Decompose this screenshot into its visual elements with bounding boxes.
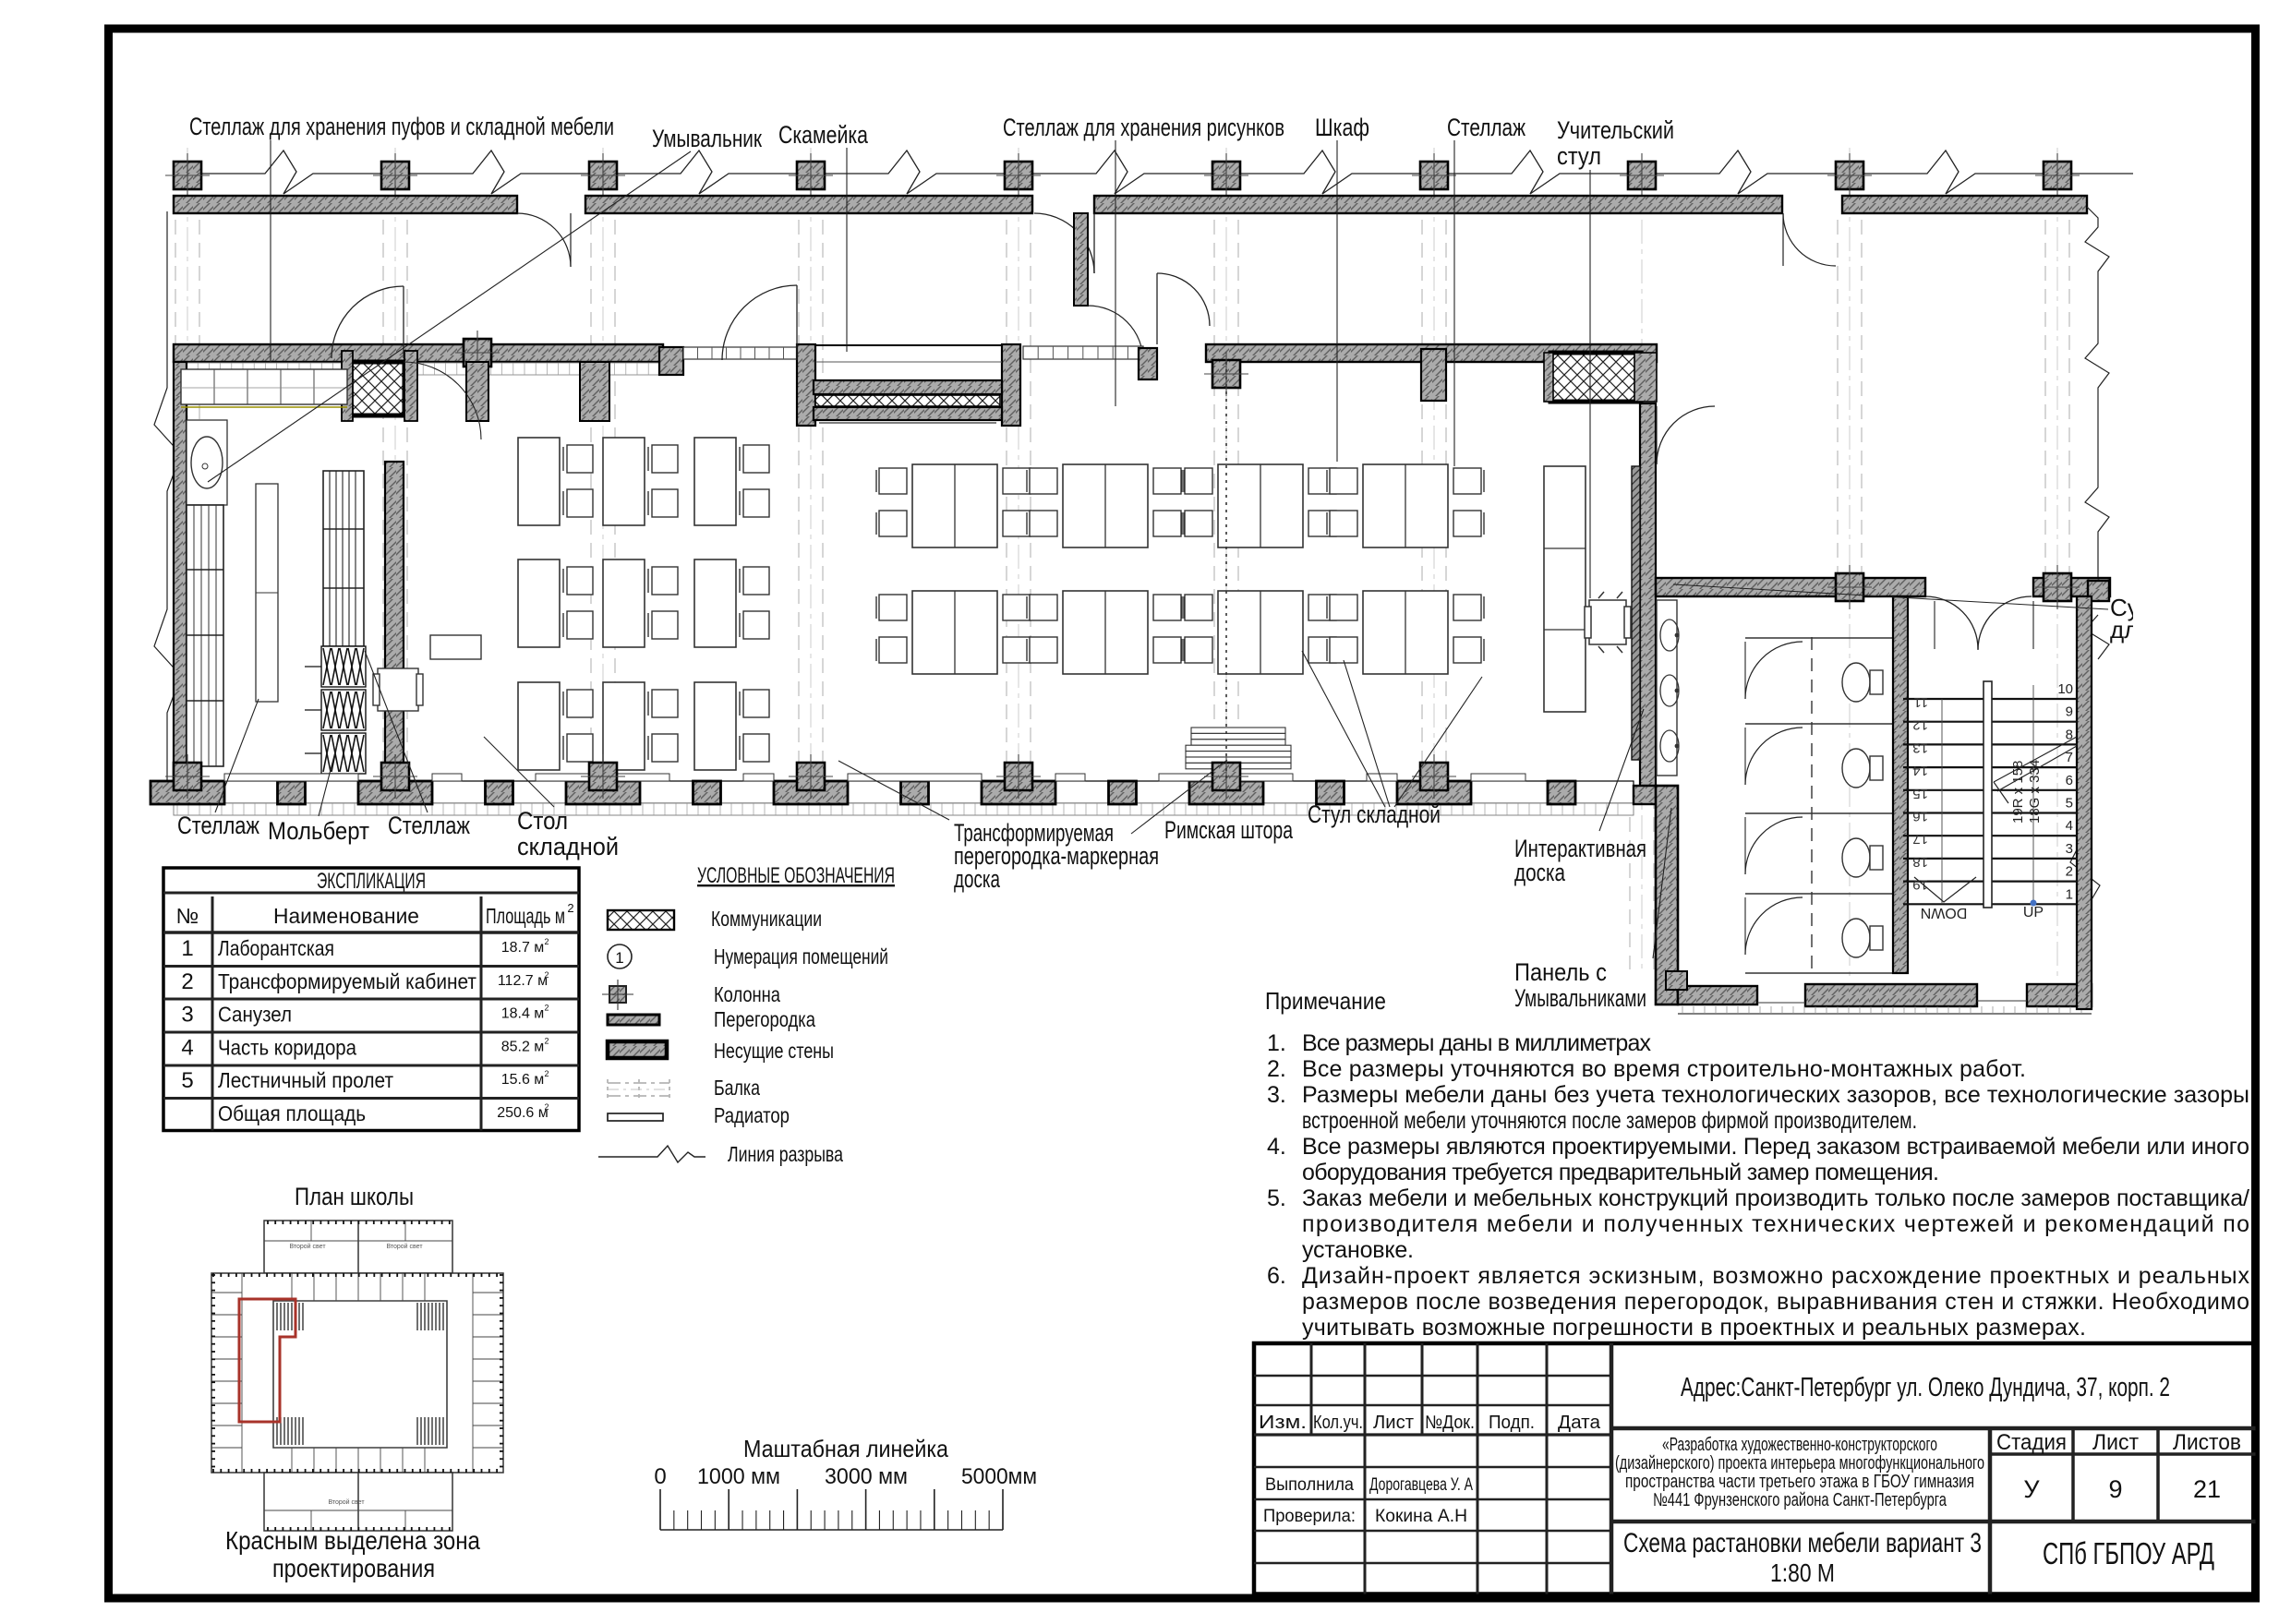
svg-text:18: 18 [1912,854,1928,870]
svg-text:14: 14 [1912,763,1928,778]
svg-text:3: 3 [181,1003,193,1028]
svg-text:1:80 М: 1:80 М [1770,1558,1835,1587]
svg-text:5000мм: 5000мм [961,1464,1037,1489]
svg-text:4.: 4. [1267,1134,1286,1160]
svg-text:15: 15 [1912,786,1928,801]
svg-text:Общая площадь: Общая площадь [218,1101,366,1125]
svg-text:Дизайн-проект является эскизны: Дизайн-проект является эскизным, возможн… [1302,1263,2250,1289]
svg-text:Все размеры уточняются во врем: Все размеры уточняются во время строител… [1302,1056,2026,1082]
svg-text:Санузел: Санузел [218,1003,292,1027]
svg-text:11: 11 [1913,694,1928,710]
svg-text:19R x 158: 19R x 158 [2010,761,2026,824]
svg-text:Примечание: Примечание [1265,987,1386,1015]
svg-text:ЭКСПЛИКАЦИЯ: ЭКСПЛИКАЦИЯ [317,869,426,894]
svg-text:складной: складной [517,833,619,860]
svg-text:DOWN: DOWN [1921,905,1968,920]
svg-text:4: 4 [2066,818,2073,834]
svg-text:Стеллаж для хранения пуфов и с: Стеллаж для хранения пуфов и складной ме… [189,113,614,140]
svg-text:6.: 6. [1267,1263,1286,1289]
svg-text:Все размеры являются проектиру: Все размеры являются проектируемыми. Пер… [1302,1134,2249,1160]
svg-text:Размеры мебели даны без учета: Размеры мебели даны без учета технологич… [1302,1082,2249,1108]
svg-text:9: 9 [2108,1475,2122,1503]
svg-text:17: 17 [1912,831,1928,847]
svg-text:2: 2 [544,1102,549,1112]
svg-text:Площадь м: Площадь м [486,904,565,928]
svg-text:Схема растановки мебели вариан: Схема растановки мебели вариант 3 [1623,1528,1982,1558]
svg-text:Лист: Лист [2092,1430,2139,1455]
svg-text:Скамейка: Скамейка [778,121,869,149]
svg-text:Стеллаж для хранения рисунков: Стеллаж для хранения рисунков [1003,114,1284,141]
svg-text:UP: UP [2023,905,2044,920]
svg-text:Дорогавцева У. А: Дорогавцева У. А [1369,1475,1473,1495]
svg-text:5: 5 [181,1068,193,1093]
svg-text:5: 5 [2066,796,2073,812]
svg-text:Второй свет: Второй свет [386,1243,423,1250]
svg-text:У: У [2023,1475,2040,1503]
svg-text:Стол: Стол [517,807,568,835]
svg-text:Выполнила: Выполнила [1265,1475,1354,1495]
svg-text:Перегородка: Перегородка [714,1007,815,1031]
svg-text:1: 1 [181,936,193,961]
svg-text:Стеллаж: Стеллаж [177,812,259,839]
svg-text:Нумерация помещений: Нумерация помещений [714,944,888,968]
svg-text:Коммуникации: Коммуникации [711,907,822,931]
svg-text:2: 2 [544,937,549,946]
svg-text:18.4 м: 18.4 м [501,1006,545,1022]
svg-text:112.7 м: 112.7 м [498,973,548,989]
svg-text:2: 2 [544,1004,549,1013]
svg-text:№Док.: №Док. [1425,1413,1475,1433]
svg-text:Наименование: Наименование [273,904,419,928]
svg-text:Радиатор: Радиатор [714,1103,790,1127]
svg-text:Красным выделена зона: Красным выделена зона [225,1526,480,1555]
svg-text:СПб ГБПОУ АРД: СПб ГБПОУ АРД [2043,1536,2214,1570]
svg-text:1: 1 [615,949,623,967]
svg-text:Стул складной: Стул складной [1308,800,1441,828]
svg-text:проектирования: проектирования [272,1554,435,1582]
svg-text:1000 мм: 1000 мм [697,1464,780,1489]
svg-text:21: 21 [2193,1475,2221,1503]
svg-text:Подп.: Подп. [1489,1413,1535,1433]
svg-text:4: 4 [181,1035,193,1060]
svg-text:3.: 3. [1267,1082,1286,1108]
svg-text:Римская штора: Римская штора [1164,816,1294,844]
svg-text:пространства части третьего эт: пространства части третьего этажа в ГБОУ… [1625,1472,1974,1492]
svg-text:250.6 м: 250.6 м [497,1105,548,1121]
svg-text:15.6 м: 15.6 м [501,1072,545,1088]
svg-text:Маштабная линейка: Маштабная линейка [743,1435,948,1462]
svg-text:Умывальник: Умывальник [652,125,762,152]
svg-text:Учительский: Учительский [1557,116,1674,144]
svg-text:Второй свет: Второй свет [289,1243,326,1250]
svg-text:2: 2 [544,1036,549,1045]
svg-text:9: 9 [2066,704,2073,720]
svg-text:85.2 м: 85.2 м [501,1039,545,1054]
svg-text:УСЛОВНЫЕ ОБОЗНАЧЕНИЯ: УСЛОВНЫЕ ОБОЗНАЧЕНИЯ [697,863,895,888]
svg-text:№: № [176,904,199,928]
svg-text:размеров после возведения пере: размеров после возведения перегородок, в… [1302,1289,2249,1315]
svg-text:2: 2 [544,970,549,980]
svg-text:Несущие стены: Несущие стены [714,1039,834,1063]
svg-text:3000 мм: 3000 мм [825,1464,908,1489]
svg-text:План школы: План школы [295,1183,414,1210]
svg-text:Заказ мебели и мебельных конст: Заказ мебели и мебельных конструкций про… [1302,1185,2249,1211]
svg-text:Лестничный пролет: Лестничный пролет [218,1068,393,1092]
svg-text:13: 13 [1912,740,1928,755]
svg-text:Стеллаж: Стеллаж [388,812,470,839]
svg-text:Колонна: Колонна [714,982,780,1006]
svg-text:№441 Фрунзенского района Санкт: №441 Фрунзенского района Санкт-Петербург… [1653,1490,1947,1510]
svg-text:2: 2 [2066,864,2073,880]
svg-text:Шкаф: Шкаф [1315,114,1369,141]
svg-text:2: 2 [544,1069,549,1078]
svg-text:Панель с: Панель с [1514,958,1607,986]
svg-text:Лист: Лист [1373,1413,1414,1433]
svg-text:Стеллаж: Стеллаж [1447,114,1525,141]
svg-text:установке.: установке. [1302,1237,1414,1263]
svg-text:Кол.уч.: Кол.уч. [1313,1413,1363,1433]
svg-text:Изм.: Изм. [1259,1413,1307,1433]
svg-text:19: 19 [1912,877,1928,893]
svg-text:Стадия: Стадия [1996,1430,2067,1455]
svg-text:2: 2 [181,969,193,994]
svg-text:учитывать возможные погрешност: учитывать возможные погрешности в проект… [1302,1315,2086,1341]
svg-text:2: 2 [567,901,573,915]
svg-text:Второй свет: Второй свет [328,1498,365,1506]
svg-text:Умывальниками: Умывальниками [1514,984,1646,1012]
svg-text:оборудования требуется предвар: оборудования требуется предварительный з… [1302,1160,1939,1185]
svg-text:18G x 334: 18G x 334 [2027,760,2043,824]
svg-text:18.7 м: 18.7 м [501,940,545,956]
svg-text:Часть коридора: Часть коридора [218,1035,356,1059]
svg-text:Дата: Дата [1558,1413,1601,1433]
svg-text:0: 0 [654,1464,666,1489]
svg-text:встроенной мебели уточняются п: встроенной мебели уточняются после замер… [1302,1108,1917,1134]
svg-text:доска: доска [954,865,1001,893]
svg-text:Все размеры даны в миллиметрах: Все размеры даны в миллиметрах [1302,1030,1652,1056]
svg-text:1: 1 [2066,886,2073,902]
svg-text:5.: 5. [1267,1185,1286,1211]
svg-text:Лаборантская: Лаборантская [218,936,334,960]
svg-text:Адрес:Санкт-Петербург ул. Олек: Адрес:Санкт-Петербург ул. Олеко Дундича,… [1681,1373,2170,1402]
svg-text:«Разработка художественно-конс: «Разработка художественно-конструкторско… [1662,1435,1937,1455]
svg-text:Кокина А.Н: Кокина А.Н [1375,1507,1467,1526]
svg-text:Трансформируемый кабинет: Трансформируемый кабинет [218,969,476,993]
svg-text:10: 10 [2057,681,2073,697]
svg-text:доска: доска [1514,859,1566,886]
svg-text:(дизайнерского) проекта интерь: (дизайнерского) проекта интерьера многоф… [1615,1453,1984,1474]
svg-text:2.: 2. [1267,1056,1286,1082]
svg-text:3: 3 [2066,841,2073,857]
svg-text:1.: 1. [1267,1030,1286,1056]
svg-text:Листов: Листов [2173,1430,2241,1455]
svg-text:16: 16 [1912,809,1928,824]
svg-text:6: 6 [2066,773,2073,788]
svg-text:Проверила:: Проверила: [1263,1507,1356,1526]
svg-text:Балка: Балка [714,1076,760,1100]
svg-text:12: 12 [1912,717,1928,733]
svg-text:Линия разрыва: Линия разрыва [728,1142,843,1166]
svg-text:стул: стул [1557,142,1601,170]
svg-text:Мольберт: Мольберт [268,817,369,845]
